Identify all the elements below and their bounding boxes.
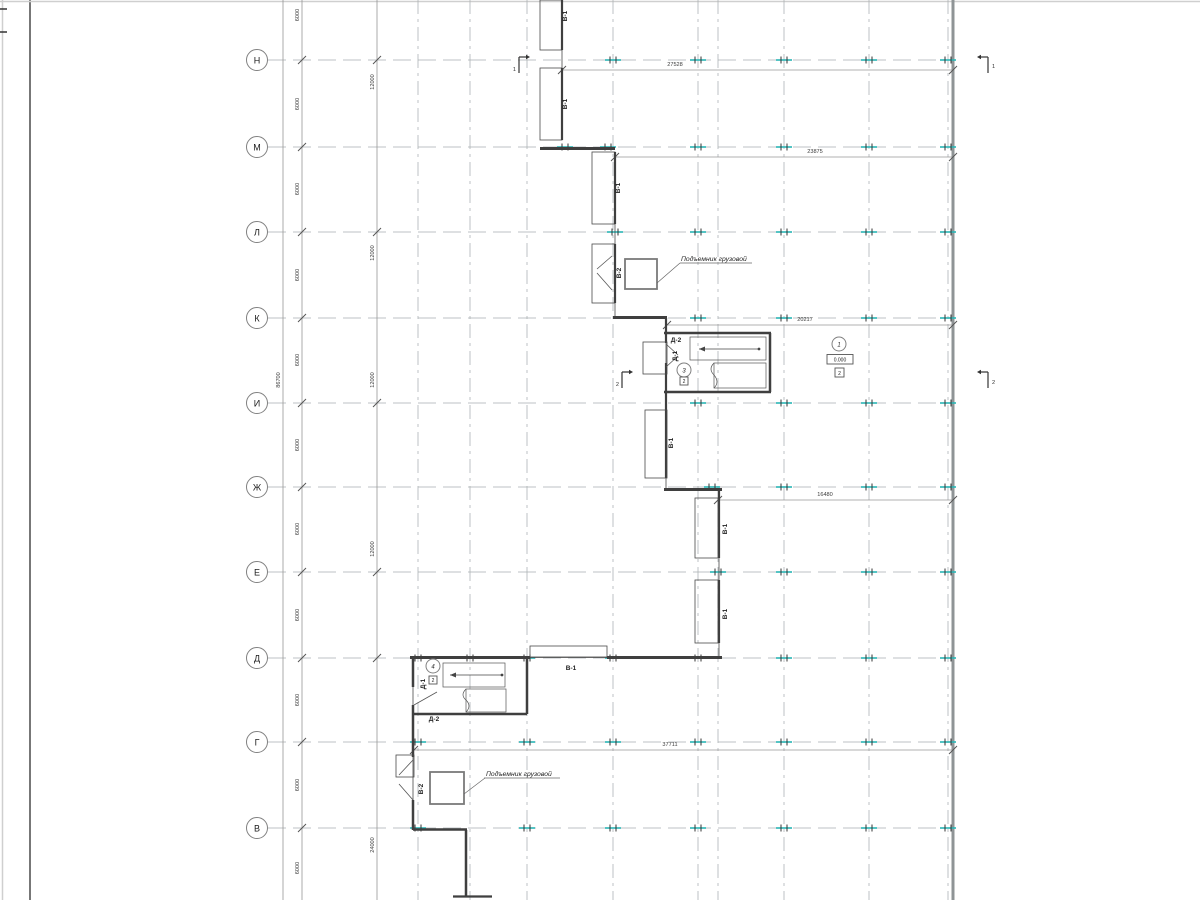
axis-label: Ж [253,483,262,493]
column-tick [861,315,877,322]
gate-ramp [530,646,607,657]
section-marker-2-left: 2 [616,370,633,388]
dim-label-6000: 6000 [295,183,301,195]
stair-arrow-icon [699,347,705,352]
section-number: 1 [992,64,995,70]
lower-freight-lift: Подъемник грузовой В-2 [418,770,560,804]
wall-pier [396,755,414,777]
section-arrow-icon [629,370,633,374]
door-leaf [399,784,413,800]
column-tick [690,315,706,322]
axis-label: Г [255,738,260,748]
door-mark-d2: Д-2 [671,337,682,344]
dim-label-12000: 12000 [370,245,376,261]
row-grid-lines [268,60,952,828]
lift-shaft [430,772,464,804]
wall-pier [695,580,718,643]
dim-label-6000: 6000 [295,269,301,281]
upper-freight-lift: Подъемник грузовой В-2 [616,255,752,289]
leader-line [464,778,485,794]
axis-label: Е [254,568,260,578]
axis-label: Л [254,228,260,238]
gate-mark-v1: В-1 [722,523,729,534]
axis-label: Д [254,654,260,664]
gate-mark-v1: В-1 [722,608,729,619]
axis-label: В [254,824,260,834]
door-leaf [597,273,612,290]
dim-label-6000: 6000 [295,98,301,110]
wall-pier [643,342,667,374]
wall-pier [592,244,615,303]
gate-mark-v1: В-1 [566,665,577,672]
section-marker-1-left: 1 [513,55,530,73]
column-tick [776,315,792,322]
wall-pier [695,498,718,558]
gate-mark-v1: В-1 [668,437,675,448]
dim-label-37711: 37711 [662,742,677,748]
section-number: 2 [992,380,995,386]
leader-line [657,263,680,283]
floor-plan-canvas: 86700 6000 6000 6000 6000 6000 6000 6000… [0,0,1200,900]
section-arrow-icon [977,370,981,374]
dim-label-27528: 27528 [667,62,683,68]
floor-type-label: 2 [838,371,841,377]
wall-pier [592,152,615,224]
dim-label-12000: 12000 [370,74,376,90]
vertical-dimension-labels: 86700 6000 6000 6000 6000 6000 6000 6000… [276,9,376,874]
section-arrow-icon [977,55,981,59]
dim-label-6000: 6000 [295,694,301,706]
axis-row-bubbles: Н М Л К И Ж Е Д Г В [247,50,268,839]
horizontal-dimension-lines: 27528 23875 20217 16480 37711 [410,62,957,754]
lower-stair [443,663,506,712]
dim-label-12000: 12000 [370,372,376,388]
floor-type-label: 2 [683,379,686,385]
floor-type-label: 2 [432,678,435,684]
lift-callout-label: Подъемник грузовой [486,770,552,778]
dim-label-total: 86700 [276,372,282,388]
door-mark-d2: Д-2 [429,716,440,723]
dim-label-6000: 6000 [295,354,301,366]
gate-mark-v2: В-2 [418,783,425,794]
dim-label-12000: 12000 [370,541,376,557]
dim-label-23875: 23875 [807,149,823,155]
room-annotations: 3 2 4 2 1 0.000 2 [426,337,853,684]
door-mark-d1: Д-1 [672,350,679,361]
dim-label-6000: 6000 [295,523,301,535]
axis-label: И [254,399,260,409]
stair-flight [466,689,506,712]
section-marker-1-right: 1 [977,55,995,73]
elevation-label: 0.000 [834,358,847,364]
axis-label: М [253,143,261,153]
building-walls [396,0,771,897]
gate-mark-v1: В-1 [562,10,569,21]
wall-pier [540,0,562,50]
section-number: 2 [616,382,619,388]
gate-mark-v1: В-1 [615,182,622,193]
dim-label-6000: 6000 [295,439,301,451]
stair-arrow-icon [450,673,456,678]
stair-start-dot [501,674,504,677]
dim-label-6000: 6000 [295,779,301,791]
door-leaf [597,256,612,269]
axis-label: К [254,314,260,324]
upper-stair [690,337,766,388]
gate-mark-v2: В-2 [616,267,623,278]
stair-flight [714,363,766,388]
sheet-frame [0,0,1200,900]
section-marker-2-right: 2 [977,370,995,388]
wall-pier [540,68,562,140]
lift-callout-label: Подъемник грузовой [681,255,747,263]
wall-pier [645,410,667,478]
dim-label-6000: 6000 [295,862,301,874]
column-grid-lines [418,0,948,900]
room-number: 1 [837,343,840,349]
axis-label: Н [254,56,261,66]
door-leaf [414,692,437,705]
dim-label-6000: 6000 [295,9,301,21]
door-leaf [399,760,413,775]
section-arrow-icon [526,55,530,59]
dim-label-20217: 20217 [797,317,813,323]
dim-label-24000: 24000 [370,837,376,853]
dim-label-16480: 16480 [817,492,833,498]
dim-label-6000: 6000 [295,609,301,621]
lift-shaft [625,259,657,289]
stair-start-dot [758,348,761,351]
door-mark-d1: Д-1 [420,678,427,689]
section-number: 1 [513,67,516,73]
section-markers: 1 1 2 2 [513,55,995,388]
gate-mark-v1: В-1 [562,98,569,109]
